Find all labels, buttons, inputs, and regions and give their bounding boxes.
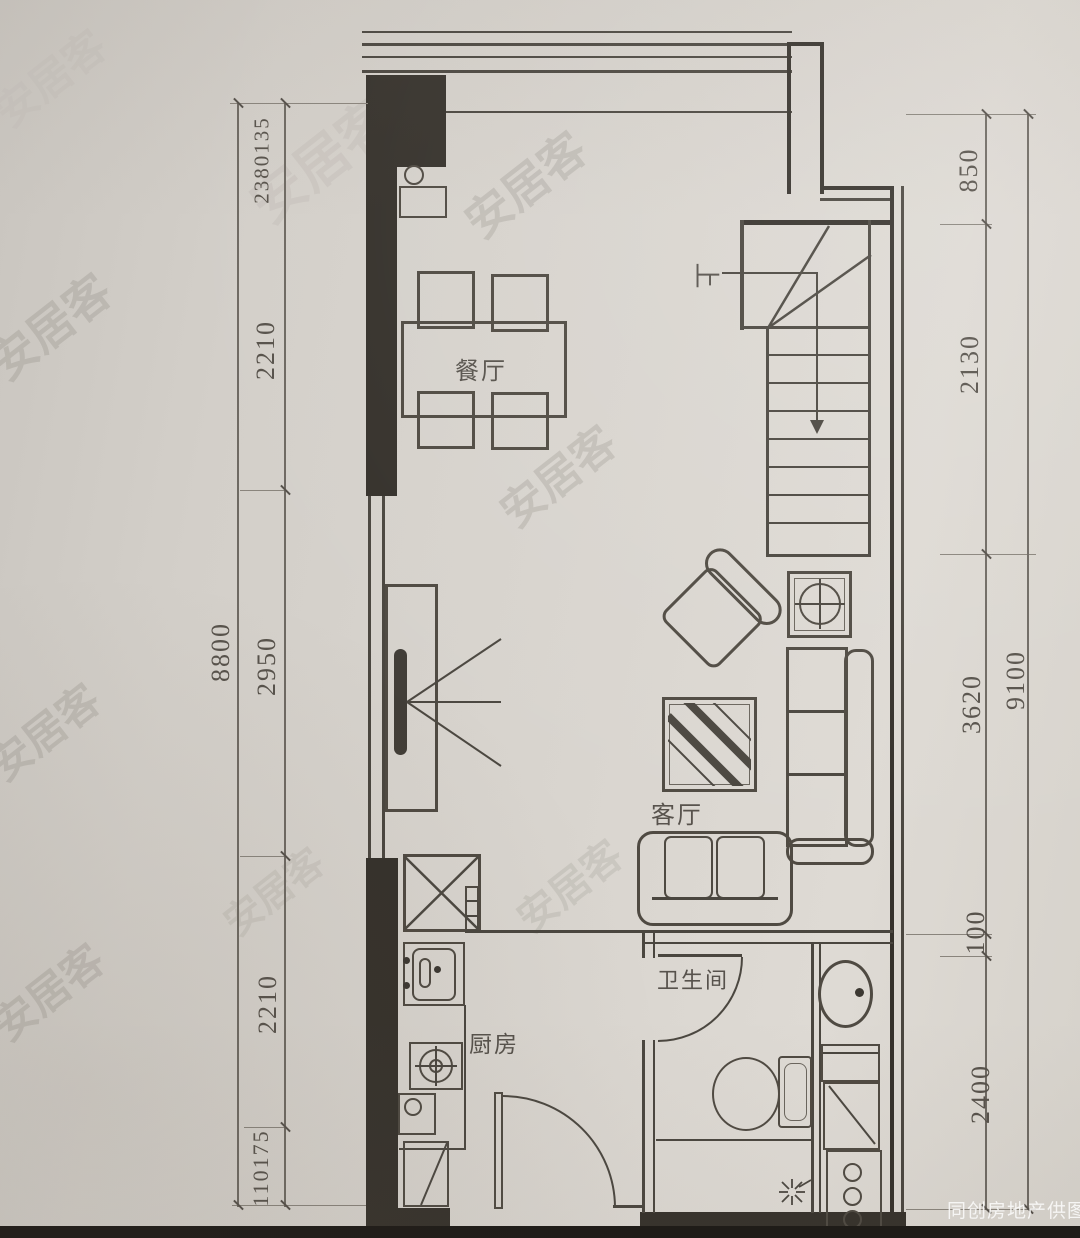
- dim-label: 2950: [252, 636, 282, 696]
- dim-label: 110175: [248, 1129, 274, 1206]
- floorplan-sheet: 安居客 安居客 安居客 安居客 安居客 安居客 安居客 安居客 安居客 上: [0, 0, 1080, 1238]
- dimension-line-left-inner: [284, 103, 286, 1207]
- dim-label: 2130: [955, 334, 985, 394]
- dim-label: 2210: [253, 974, 283, 1034]
- extension-line: [240, 490, 286, 491]
- extension-line: [240, 856, 286, 857]
- dim-label: 8800: [206, 622, 236, 682]
- floorplan-photo: 安居客 安居客 安居客 安居客 安居客 安居客 安居客 安居客 安居客 上: [0, 0, 1080, 1238]
- extension-line: [906, 114, 1036, 115]
- agency-credit-watermark: 同创房地产供图: [947, 1196, 1080, 1223]
- dim-label: 2210: [251, 320, 281, 380]
- dimension-line-left-outer: [237, 103, 239, 1207]
- extension-line: [244, 1127, 286, 1128]
- extension-line: [230, 103, 368, 104]
- dim-label: 3620: [957, 674, 987, 734]
- dimension-line-right-inner: [985, 114, 987, 1210]
- dim-label: 9100: [1001, 650, 1031, 710]
- line-art-layer: [0, 0, 1080, 1238]
- photo-bottom-edge: [0, 1226, 1080, 1238]
- dim-label: 2380135: [250, 116, 275, 204]
- dim-label: 100: [961, 910, 991, 955]
- dim-label: 2400: [966, 1064, 996, 1124]
- dim-label: 850: [954, 148, 984, 193]
